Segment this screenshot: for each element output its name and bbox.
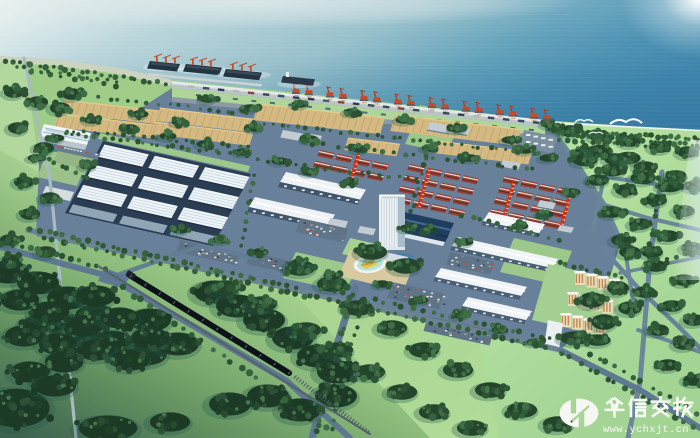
svg-text:www.ychxjt.cn: www.ychxjt.cn	[603, 424, 689, 436]
